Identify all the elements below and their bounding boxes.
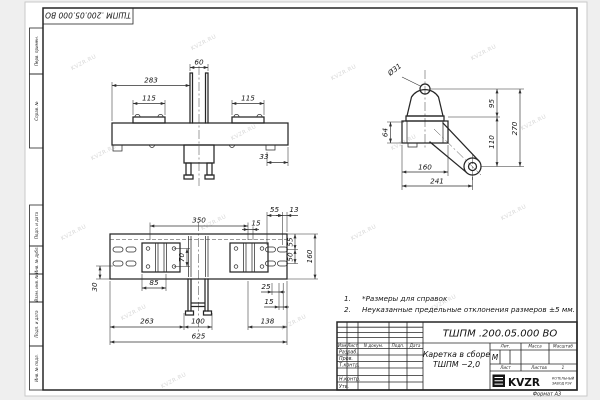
tb-sheets-label: Листов <box>530 365 547 370</box>
tb-row-razrab: Разраб. <box>339 350 358 356</box>
logo-sub2: ЗАВОД РЭУ <box>552 382 573 386</box>
tb-sheets-value: 1 <box>562 365 565 370</box>
tb-hdr-ndoc: N докум. <box>364 343 383 348</box>
dim-side-95: 95 <box>487 99 496 109</box>
dim-front-115r: 115 <box>241 94 255 103</box>
dim-side-241: 241 <box>430 177 444 186</box>
tb-sheet-label: Лист <box>499 365 511 370</box>
top-stamp-text: ТШПМ .200.05.000 ВО <box>45 11 131 20</box>
dim-plan-25: 25 <box>261 282 271 291</box>
tb-row-nkontr: Н.контр. <box>339 377 360 383</box>
dim-plan-625: 625 <box>192 332 206 341</box>
logo-sub1: КОТЕЛЬНЫЙ <box>552 376 575 381</box>
margin-label-sprav-no: Справ. № <box>34 101 39 120</box>
tb-hdr-masshtab: Масштаб <box>553 344 573 349</box>
tb-hdr-izm: Изм <box>338 343 347 348</box>
dim-side-160: 160 <box>418 163 432 172</box>
dim-plan-100: 100 <box>191 317 205 326</box>
note-1-text: *Размеры для справок <box>362 294 448 303</box>
tb-name-line1: Каретка в сборе <box>423 350 490 359</box>
dim-plan-55t: 55 <box>270 205 280 214</box>
dim-plan-138: 138 <box>261 317 275 326</box>
margin-label-inv-dubl: Инв. № дубл. <box>34 246 39 273</box>
drawing-sheet: Перв. примен. Справ. № Подп. и дата Инв.… <box>0 0 600 400</box>
tb-hdr-list: Лист <box>346 343 358 348</box>
dim-plan-15t: 15 <box>251 219 261 228</box>
dim-plan-15b: 15 <box>264 297 274 306</box>
dim-side-270: 270 <box>510 121 519 135</box>
dim-plan-70: 70 <box>177 253 186 263</box>
dim-plan-30: 30 <box>90 282 99 292</box>
tb-hdr-massa: Масса <box>528 344 542 349</box>
note-2-number: 2. <box>344 305 351 314</box>
margin-label-podp-data-2: Подп. и дата <box>34 310 39 338</box>
dim-plan-55r: 55 <box>285 237 294 247</box>
dim-side-110: 110 <box>487 135 496 149</box>
tb-row-prov: Пров. <box>339 356 353 362</box>
tb-name-line2: ТШПМ −2,0 <box>433 360 480 369</box>
tb-hdr-data: Дата <box>409 343 421 348</box>
dim-front-33: 33 <box>259 152 269 161</box>
dim-plan-13: 13 <box>289 205 299 214</box>
margin-label-inv-podl: Инв. № подл. <box>34 354 39 382</box>
dim-plan-160r: 160 <box>305 249 314 263</box>
dim-side-64: 64 <box>381 128 390 138</box>
tb-hdr-podp: Подп. <box>392 343 405 348</box>
tb-row-utv: Утв. <box>339 384 349 390</box>
note-2-text: Неуказанные предельные отклонения размер… <box>362 305 575 314</box>
dim-front-60: 60 <box>194 58 204 67</box>
note-1-number: 1. <box>344 294 351 303</box>
format-label: Формат А3 <box>533 391 561 397</box>
tb-hdr-lit: Лит. <box>500 344 511 349</box>
tb-row-tkontr: Т.контр. <box>339 363 360 369</box>
margin-label-vzam-inv: Взам. инв. № <box>34 274 39 301</box>
dim-plan-350: 350 <box>192 216 206 225</box>
margin-label-podp-data-1: Подп. и дата <box>34 211 39 239</box>
tb-designation: ТШПМ .200.05.000 ВО <box>443 329 558 340</box>
logo-text: KVZR <box>508 377 540 389</box>
margin-label-perv-primen: Перв. примен. <box>34 36 39 66</box>
dim-plan-85: 85 <box>149 278 159 287</box>
dim-front-283: 283 <box>144 76 158 85</box>
dim-plan-50r: 50 <box>285 252 294 262</box>
dim-front-115l: 115 <box>142 94 156 103</box>
tb-lit-value: М <box>492 353 499 362</box>
drawing-canvas: Перв. примен. Справ. № Подп. и дата Инв.… <box>0 0 600 400</box>
dim-plan-263: 263 <box>140 317 154 326</box>
